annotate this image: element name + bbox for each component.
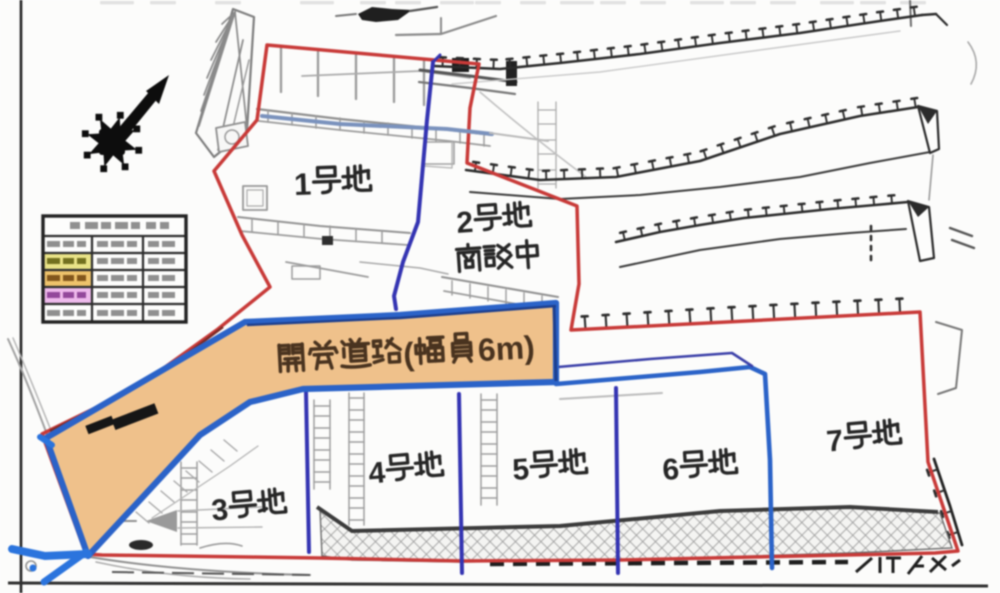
svg-text:1: 1 (293, 167, 311, 203)
svg-text:6: 6 (661, 453, 680, 487)
svg-text:4: 4 (367, 456, 387, 490)
svg-text:7: 7 (825, 424, 845, 458)
svg-text:3: 3 (210, 493, 230, 527)
svg-text:2: 2 (455, 206, 474, 240)
svg-text:6: 6 (477, 331, 497, 368)
svg-text:): ) (523, 329, 536, 366)
svg-text:5: 5 (511, 453, 530, 487)
svg-text:m: m (495, 330, 525, 368)
